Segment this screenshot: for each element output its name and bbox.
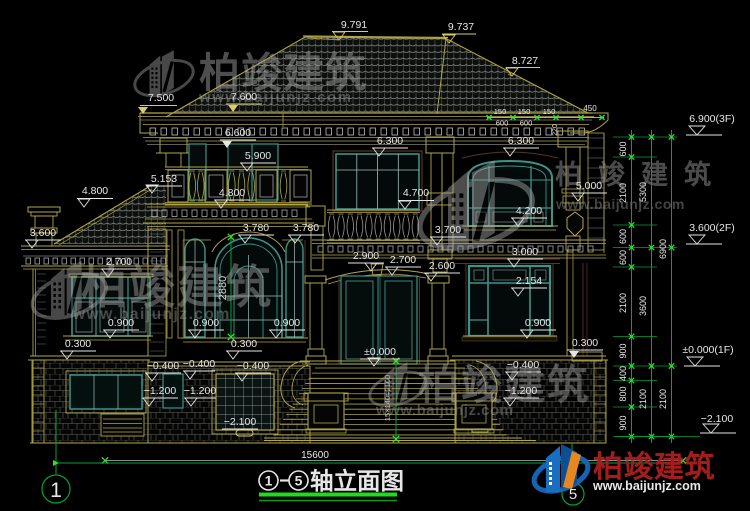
svg-text:−1.200: −1.200 (505, 385, 538, 397)
svg-text:900: 900 (618, 343, 628, 358)
svg-text:4.700: 4.700 (403, 187, 429, 199)
svg-text:4.800: 4.800 (219, 187, 245, 199)
svg-text:2100: 2100 (618, 293, 628, 313)
svg-text:5.000: 5.000 (576, 180, 602, 192)
svg-text:4.800: 4.800 (82, 185, 108, 197)
svg-text:2100: 2100 (658, 389, 668, 409)
svg-text:800: 800 (618, 386, 628, 401)
svg-text:9.791: 9.791 (341, 19, 367, 31)
svg-text:2.700: 2.700 (106, 256, 132, 268)
svg-text:1: 1 (265, 473, 273, 489)
svg-text:5.900: 5.900 (245, 150, 271, 162)
svg-text:−2.100: −2.100 (224, 416, 257, 428)
svg-text:−0.400: −0.400 (183, 358, 216, 370)
svg-text:220: 220 (552, 124, 559, 136)
svg-text:600: 600 (618, 229, 628, 244)
svg-text:0.900: 0.900 (108, 317, 134, 329)
svg-text:2100: 2100 (618, 183, 628, 203)
svg-text:2100: 2100 (638, 389, 648, 409)
svg-text:1: 1 (50, 479, 62, 502)
svg-text:5300: 5300 (638, 182, 648, 202)
svg-text:8.727: 8.727 (512, 55, 538, 67)
svg-text:3.600(2F): 3.600(2F) (689, 222, 735, 234)
svg-text:0.300: 0.300 (572, 337, 598, 349)
svg-text:6900: 6900 (658, 239, 668, 259)
svg-text:6.600: 6.600 (225, 127, 251, 139)
svg-text:7.500: 7.500 (148, 92, 174, 104)
svg-text:轴立面图: 轴立面图 (310, 467, 404, 494)
svg-text:−2.100: −2.100 (701, 413, 734, 425)
svg-text:−1.200: −1.200 (184, 385, 217, 397)
svg-text:2.154: 2.154 (516, 275, 542, 287)
svg-text:3600: 3600 (638, 296, 648, 316)
svg-text:0.900: 0.900 (274, 317, 300, 329)
svg-text:−1.200: −1.200 (144, 385, 177, 397)
svg-text:600: 600 (618, 141, 628, 156)
svg-text:3.780: 3.780 (293, 222, 319, 234)
svg-text:150: 150 (494, 107, 507, 116)
svg-text:900: 900 (618, 415, 628, 430)
svg-text:3.600: 3.600 (30, 227, 56, 239)
svg-text:7.600: 7.600 (231, 91, 257, 103)
svg-text:400: 400 (618, 366, 628, 381)
svg-text:±0.000: ±0.000 (364, 346, 396, 358)
svg-text:450: 450 (583, 104, 597, 113)
svg-text:www.baijunjz.com: www.baijunjz.com (592, 479, 701, 493)
svg-text:3.700: 3.700 (435, 224, 461, 236)
svg-text:www.baijunjz.com: www.baijunjz.com (375, 402, 513, 419)
svg-text:0.900: 0.900 (193, 317, 219, 329)
svg-text:−0.400: −0.400 (507, 359, 540, 371)
svg-text:600: 600 (618, 250, 628, 265)
svg-text:6.300: 6.300 (377, 135, 403, 147)
svg-text:−0.400: −0.400 (237, 360, 270, 372)
svg-text:0.300: 0.300 (65, 338, 91, 350)
svg-text:600: 600 (496, 119, 509, 128)
svg-text:4.200: 4.200 (516, 205, 542, 217)
svg-text:2.700: 2.700 (390, 254, 416, 266)
svg-text:5: 5 (295, 473, 303, 489)
svg-text:2.900: 2.900 (353, 250, 379, 262)
svg-text:6.900(3F): 6.900(3F) (689, 113, 735, 125)
svg-text:0.300: 0.300 (231, 338, 257, 350)
svg-text:2.600: 2.600 (429, 260, 455, 272)
svg-text:5.153: 5.153 (151, 173, 177, 185)
svg-text:600: 600 (520, 119, 533, 128)
svg-text:3.000: 3.000 (512, 246, 538, 258)
svg-text:6.300: 6.300 (508, 135, 534, 147)
svg-text:150: 150 (543, 107, 556, 116)
svg-text:9.737: 9.737 (448, 21, 474, 33)
svg-text:±0.000(1F): ±0.000(1F) (682, 344, 733, 356)
svg-text:150: 150 (518, 107, 531, 116)
svg-text:−0.400: −0.400 (147, 360, 180, 372)
svg-text:0.900: 0.900 (525, 317, 551, 329)
svg-text:www.baijunjz.com: www.baijunjz.com (198, 89, 352, 106)
svg-text:3.780: 3.780 (243, 222, 269, 234)
svg-text:15600: 15600 (301, 450, 329, 461)
